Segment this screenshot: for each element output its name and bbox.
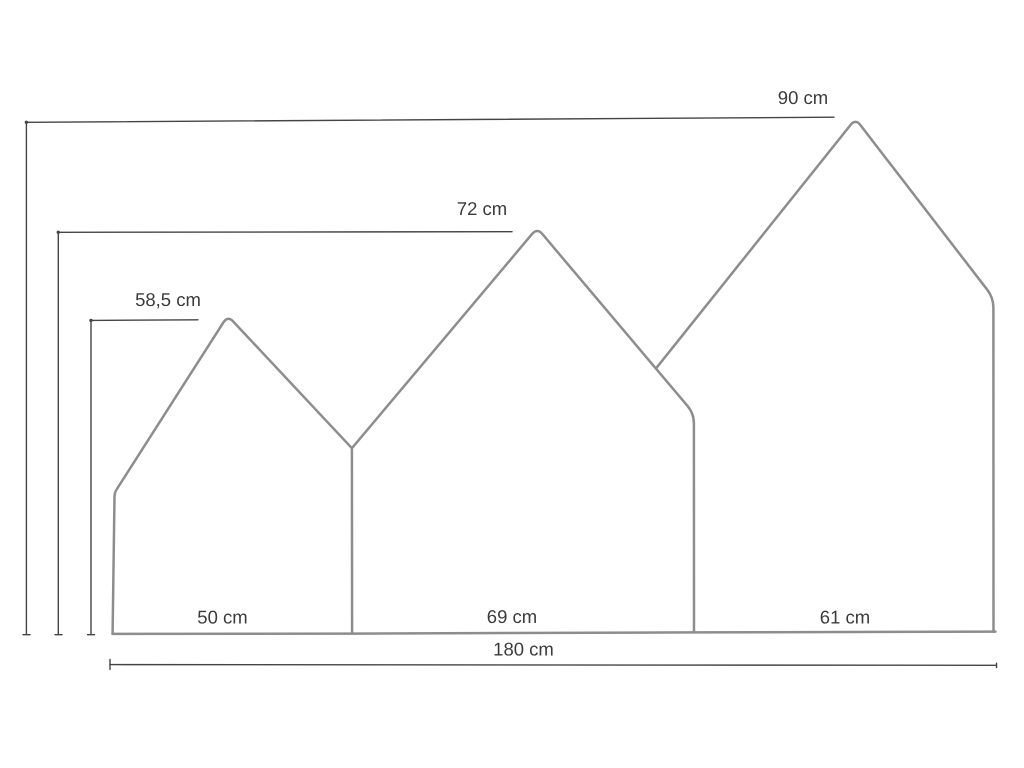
svg-text:90 cm: 90 cm bbox=[778, 87, 828, 108]
svg-text:72 cm: 72 cm bbox=[457, 198, 507, 219]
svg-text:58,5 cm: 58,5 cm bbox=[135, 289, 201, 310]
svg-text:61 cm: 61 cm bbox=[820, 607, 870, 628]
svg-text:180 cm: 180 cm bbox=[493, 639, 554, 660]
svg-text:69 cm: 69 cm bbox=[487, 606, 537, 627]
svg-text:50 cm: 50 cm bbox=[197, 607, 247, 628]
